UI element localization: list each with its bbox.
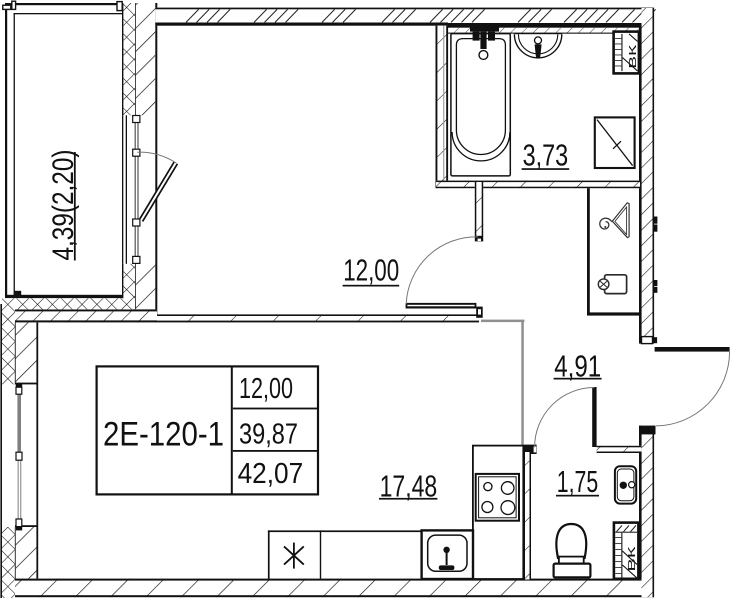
svg-text:12,00: 12,00 — [239, 373, 293, 405]
svg-text:3,73: 3,73 — [523, 137, 569, 172]
svg-text:12,00: 12,00 — [343, 253, 399, 288]
svg-text:42,07: 42,07 — [238, 458, 304, 490]
svg-text:39,87: 39,87 — [239, 418, 298, 450]
svg-text:ВК: ВК — [626, 545, 638, 572]
svg-text:1,75: 1,75 — [557, 464, 598, 499]
svg-text:2Е-120-1: 2Е-120-1 — [103, 415, 224, 453]
svg-text:ВК: ВК — [627, 43, 639, 69]
